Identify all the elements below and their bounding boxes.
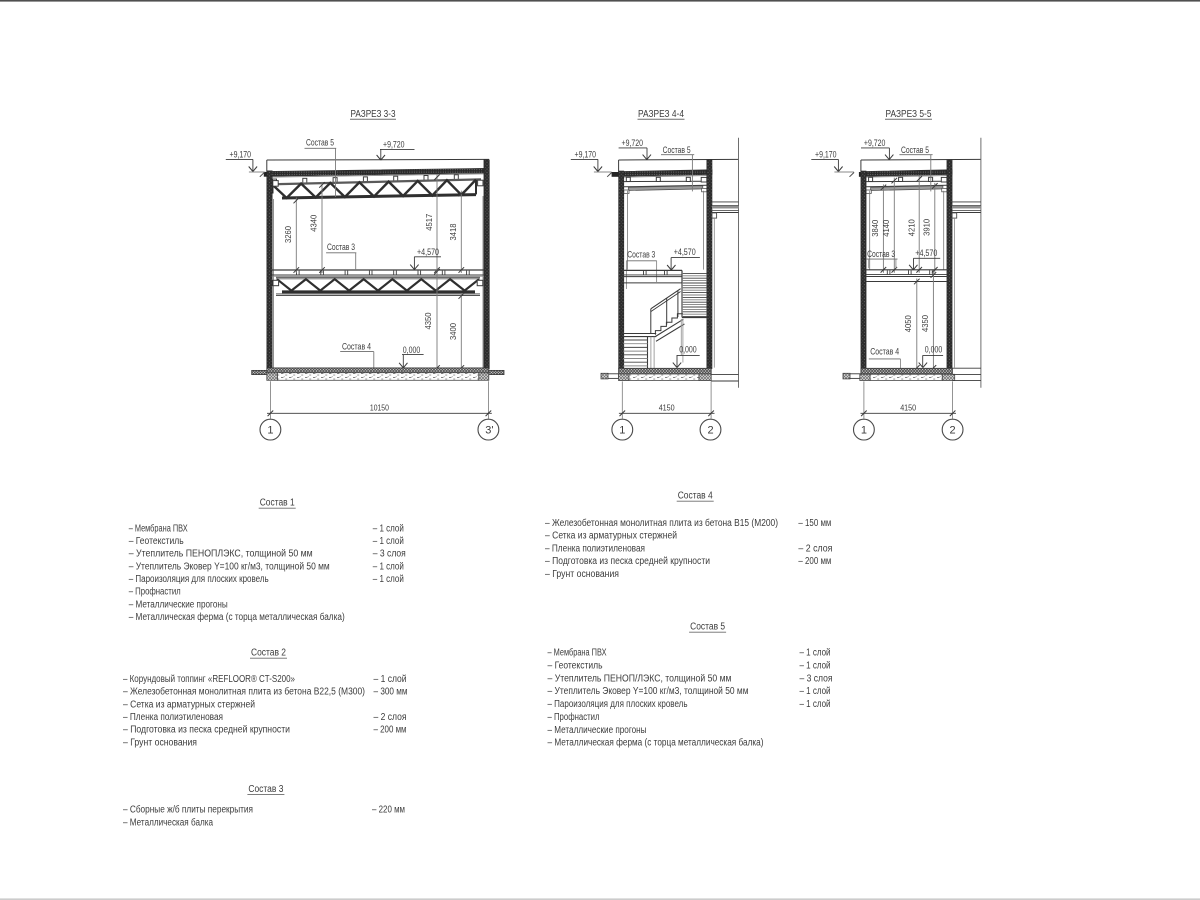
svg-text:3910: 3910 [923, 218, 932, 236]
svg-text:+9,720: +9,720 [864, 138, 886, 148]
svg-text:– Мембрана ПВХ: – Мембрана ПВХ [129, 522, 188, 534]
svg-text:– 1 слой: – 1 слой [373, 561, 404, 572]
svg-text:1: 1 [619, 425, 625, 437]
svg-text:3260: 3260 [284, 225, 293, 243]
svg-text:– Утеплитель ПЕНОП/ЛЭКС, толщи: – Утеплитель ПЕНОП/ЛЭКС, толщиной 50 мм [548, 673, 732, 684]
svg-text:– Сетка из арматурных стержней: – Сетка из арматурных стержней [123, 699, 255, 710]
svg-text:1: 1 [267, 425, 273, 437]
svg-text:4350: 4350 [921, 314, 930, 332]
svg-text:– Корундовый топпинг «REFLOOR®: – Корундовый топпинг «REFLOOR® CT-S200» [123, 674, 295, 685]
svg-text:– 1 слой: – 1 слой [373, 536, 404, 547]
svg-text:– 220 мм: – 220 мм [372, 805, 405, 816]
svg-text:– 1 слой: – 1 слой [373, 574, 404, 585]
svg-text:– Железобетонная монолитная п: – Железобетонная монолитная плита из бет… [545, 517, 778, 529]
svg-text:– 3 слоя: – 3 слоя [373, 549, 406, 560]
svg-text:РАЗРЕЗ 4-4: РАЗРЕЗ 4-4 [638, 108, 684, 120]
svg-text:– Металлические прогоны: – Металлические прогоны [129, 599, 228, 610]
svg-text:– Металлическая ферма (с торца: – Металлическая ферма (с торца металличе… [548, 737, 764, 749]
svg-text:Состав 4: Состав 4 [678, 491, 713, 502]
svg-text:4350: 4350 [424, 312, 433, 330]
svg-text:Состав 3: Состав 3 [627, 249, 655, 260]
svg-text:– Металлическая ферма (с торца: – Металлическая ферма (с торца металличе… [129, 611, 345, 623]
svg-text:– Пароизоляция для плоских кро: – Пароизоляция для плоских кровель [129, 574, 269, 585]
svg-text:4140: 4140 [882, 219, 891, 237]
svg-text:– Сборные ж/б плиты перекрытия: – Сборные ж/б плиты перекрытия [123, 804, 253, 816]
svg-text:– Мембрана ПВХ: – Мембрана ПВХ [548, 647, 607, 659]
svg-text:0,000: 0,000 [403, 345, 421, 355]
svg-text:– Железобетонная монолитная п: – Железобетонная монолитная плита из бет… [123, 686, 365, 698]
svg-text:0,000: 0,000 [925, 345, 943, 355]
svg-text:4340: 4340 [309, 214, 318, 232]
svg-text:– Утеплитель Эковер Y=100 кг/м: – Утеплитель Эковер Y=100 кг/м3, толщино… [129, 561, 330, 572]
svg-text:Состав 4: Состав 4 [870, 347, 899, 358]
svg-text:– Утеплитель ПЕНОПЛЭКС, толщин: – Утеплитель ПЕНОПЛЭКС, толщиной 50 мм [129, 549, 313, 560]
svg-text:– Профнастил: – Профнастил [129, 586, 181, 598]
svg-text:4150: 4150 [900, 403, 916, 413]
svg-text:– Пленка полиэтиленовая: – Пленка полиэтиленовая [123, 712, 223, 723]
svg-text:– Подготовка из песка средней: – Подготовка из песка средней крупности [545, 556, 710, 567]
svg-text:Состав 5: Состав 5 [901, 145, 929, 156]
svg-text:2: 2 [707, 425, 713, 437]
svg-text:– Подготовка из песка средней: – Подготовка из песка средней крупности [123, 725, 290, 736]
svg-text:Состав 5: Состав 5 [306, 138, 334, 149]
svg-text:3418: 3418 [449, 223, 458, 241]
svg-text:0,000: 0,000 [679, 344, 697, 354]
svg-text:+9,170: +9,170 [815, 150, 837, 160]
svg-text:– Утеплитель Эковер Y=100 кг/м: – Утеплитель Эковер Y=100 кг/м3, толщино… [548, 686, 749, 697]
svg-text:РАЗРЕЗ 5-5: РАЗРЕЗ 5-5 [886, 108, 932, 120]
svg-text:Состав 5: Состав 5 [690, 622, 725, 633]
svg-text:– Сетка из арматурных стержней: – Сетка из арматурных стержней [545, 531, 677, 542]
svg-text:РАЗРЕЗ 3-3: РАЗРЕЗ 3-3 [351, 108, 396, 120]
svg-text:4210: 4210 [907, 219, 916, 237]
svg-text:+9,170: +9,170 [575, 150, 597, 160]
svg-text:Состав 3: Состав 3 [248, 784, 283, 795]
svg-text:– 200 мм: – 200 мм [374, 725, 407, 736]
svg-text:4150: 4150 [659, 403, 675, 413]
svg-text:– 2 слоя: – 2 слоя [374, 712, 407, 723]
svg-text:1: 1 [861, 425, 867, 437]
svg-text:– Пароизоляция для плоских кро: – Пароизоляция для плоских кровель [548, 699, 688, 710]
svg-text:4517: 4517 [425, 213, 434, 231]
svg-text:– 1 слой: – 1 слой [373, 523, 404, 534]
svg-text:Состав 1: Состав 1 [260, 498, 295, 509]
svg-text:– Грунт основания: – Грунт основания [123, 737, 197, 748]
svg-text:2: 2 [950, 425, 956, 437]
svg-text:+9,720: +9,720 [622, 138, 644, 148]
svg-text:– 1 слой: – 1 слой [374, 674, 407, 685]
svg-text:– Грунт основания: – Грунт основания [545, 569, 619, 580]
svg-text:+9,170: +9,170 [230, 150, 252, 160]
svg-text:Состав 2: Состав 2 [251, 648, 286, 659]
svg-text:– Профнастил: – Профнастил [548, 711, 600, 723]
svg-text:Состав 4: Состав 4 [342, 342, 371, 353]
svg-text:– 1 слой: – 1 слой [800, 686, 831, 697]
svg-text:– Металлические прогоны: – Металлические прогоны [548, 725, 647, 736]
svg-text:3400: 3400 [449, 322, 458, 340]
svg-text:3840: 3840 [871, 219, 880, 237]
svg-text:Состав 3: Состав 3 [327, 242, 355, 253]
svg-text:– 150 мм: – 150 мм [798, 518, 831, 529]
svg-text:4050: 4050 [904, 315, 913, 333]
svg-text:+4,570: +4,570 [417, 247, 439, 257]
svg-text:3': 3' [485, 425, 493, 437]
svg-text:– 300 мм: – 300 мм [374, 687, 408, 698]
svg-text:Состав 5: Состав 5 [663, 145, 691, 156]
svg-text:+4,570: +4,570 [915, 248, 937, 258]
svg-text:– 1 слой: – 1 слой [800, 660, 831, 671]
svg-text:– Геотекстиль: – Геотекстиль [129, 536, 184, 547]
svg-text:Состав 3: Состав 3 [867, 249, 895, 260]
svg-text:– Металлическая балка: – Металлическая балка [123, 816, 213, 828]
svg-text:– 200 мм: – 200 мм [798, 556, 831, 567]
svg-text:– 3 слоя: – 3 слоя [800, 673, 833, 684]
svg-text:+4,570: +4,570 [674, 247, 696, 257]
svg-text:10150: 10150 [370, 403, 389, 413]
svg-text:+9,720: +9,720 [383, 139, 405, 149]
svg-text:– 1 слой: – 1 слой [800, 648, 831, 659]
svg-text:– 1 слой: – 1 слой [800, 699, 831, 710]
svg-text:– 2 слоя: – 2 слоя [798, 543, 832, 554]
svg-text:– Геотекстиль: – Геотекстиль [548, 660, 603, 671]
svg-text:– Пленка полиэтиленовая: – Пленка полиэтиленовая [545, 543, 645, 554]
